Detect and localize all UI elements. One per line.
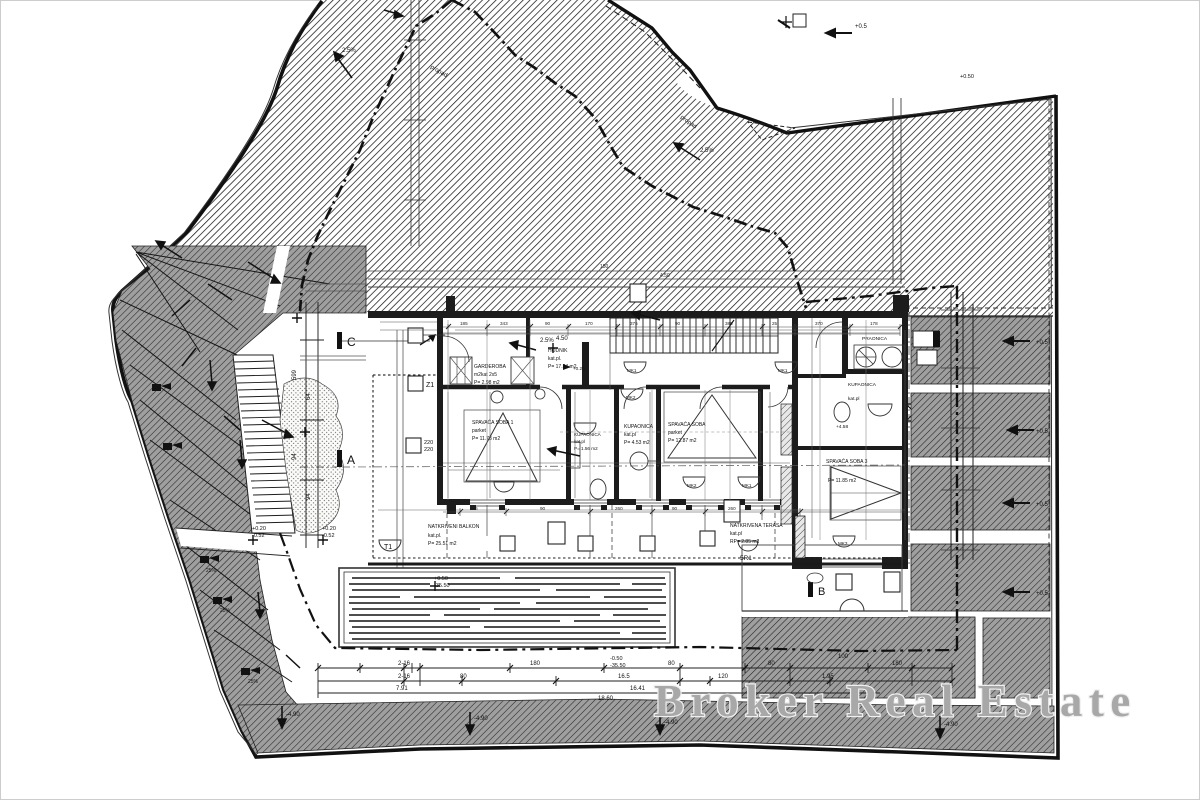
svg-text:kat.pl: kat.pl [624, 432, 636, 438]
svg-text:SPAVAĆA SOBA: SPAVAĆA SOBA [668, 421, 706, 428]
svg-text:370: 370 [815, 321, 823, 326]
svg-text:180: 180 [892, 661, 903, 667]
svg-text:80: 80 [668, 661, 675, 667]
svg-text:100: 100 [838, 654, 849, 660]
svg-text:220: 220 [424, 440, 433, 446]
svg-text:GARDEROBA: GARDEROBA [474, 364, 507, 370]
svg-text:94: 94 [306, 493, 312, 500]
svg-text:KUPAONICA: KUPAONICA [574, 432, 602, 437]
svg-text:+0.5: +0.5 [855, 24, 868, 30]
svg-text:185: 185 [460, 321, 468, 326]
svg-text:260: 260 [615, 506, 623, 511]
svg-text:P= 4.53 m2: P= 4.53 m2 [624, 440, 650, 446]
svg-text:MK1: MK1 [742, 483, 752, 488]
svg-text:SPAVAĆA SOBA 3: SPAVAĆA SOBA 3 [826, 458, 868, 465]
svg-text:-35.50: -35.50 [434, 583, 450, 589]
svg-text:4.50: 4.50 [556, 336, 568, 342]
svg-text:MK2: MK2 [687, 483, 697, 488]
svg-text:kat.pl.: kat.pl. [428, 533, 441, 539]
svg-text:P= 17.54 m2: P= 17.54 m2 [548, 364, 577, 370]
svg-text:kat.pl: kat.pl [730, 531, 742, 537]
svg-text:+4.58: +4.58 [836, 424, 848, 430]
svg-text:RP= 2.85 m2: RP= 2.85 m2 [730, 539, 760, 545]
svg-text:MK1: MK1 [627, 368, 637, 373]
svg-text:KUPAONICA: KUPAONICA [624, 424, 654, 430]
svg-text:2.5%: 2.5% [540, 338, 554, 344]
svg-text:+0.5: +0.5 [1036, 591, 1049, 597]
svg-text:180: 180 [530, 661, 541, 667]
svg-text:+0.50: +0.50 [434, 576, 448, 582]
svg-text:kat.pl.: kat.pl. [548, 356, 561, 362]
svg-text:+0.20: +0.20 [252, 526, 266, 532]
svg-text:90: 90 [545, 321, 551, 326]
svg-text:Z1: Z1 [426, 382, 434, 389]
svg-text:2.5%: 2.5% [342, 48, 356, 54]
svg-text:C: C [347, 335, 356, 349]
svg-text:-4.90: -4.90 [286, 712, 300, 718]
svg-text:MK1: MK1 [778, 368, 788, 373]
svg-text:+0.5: +0.5 [1036, 502, 1049, 508]
svg-text:P= 1.56 m2: P= 1.56 m2 [574, 446, 598, 451]
svg-text:25%: 25% [248, 679, 259, 685]
svg-text:-0.50: -0.50 [610, 656, 623, 662]
svg-text:-0.52: -0.52 [252, 533, 265, 539]
svg-text:+0.20: +0.20 [322, 526, 336, 532]
svg-text:B: B [818, 586, 825, 598]
svg-text:380: 380 [725, 321, 733, 326]
svg-text:2-16: 2-16 [398, 674, 411, 680]
svg-text:16.5: 16.5 [618, 674, 630, 680]
svg-text:+0.5: +0.5 [1036, 340, 1049, 346]
svg-text:18.60: 18.60 [598, 696, 614, 702]
svg-text:kat.pl: kat.pl [848, 396, 859, 402]
svg-text:parket: parket [668, 430, 683, 436]
svg-text:-4.90: -4.90 [474, 716, 488, 722]
svg-text:90: 90 [672, 506, 678, 511]
svg-text:P= 12.87 m2: P= 12.87 m2 [668, 438, 697, 444]
svg-text:parket: parket [472, 428, 487, 434]
svg-text:170: 170 [585, 321, 593, 326]
svg-text:25%: 25% [220, 608, 231, 614]
svg-text:SPAVAĆA SOBA 1: SPAVAĆA SOBA 1 [472, 419, 514, 426]
svg-text:P= 25.51 m2: P= 25.51 m2 [428, 541, 457, 547]
svg-text:2.5%: 2.5% [700, 148, 714, 154]
svg-text:7.91: 7.91 [396, 686, 408, 692]
svg-text:P= 11.85 m2: P= 11.85 m2 [828, 478, 856, 484]
svg-text:-0.52: -0.52 [322, 533, 335, 539]
svg-text:P= 11.73 m2: P= 11.73 m2 [472, 436, 500, 442]
svg-text:NATKRIVENA TERASA: NATKRIVENA TERASA [730, 523, 783, 529]
svg-text:343: 343 [500, 321, 508, 326]
svg-text:25: 25 [772, 321, 778, 326]
svg-text:178: 178 [870, 321, 878, 326]
svg-text:kat.pl: kat.pl [574, 439, 585, 444]
svg-text:150: 150 [600, 264, 609, 270]
svg-text:220: 220 [424, 447, 433, 453]
svg-text:64: 64 [306, 393, 312, 400]
svg-text:2-16: 2-16 [398, 661, 411, 667]
svg-text:NATKRIVENI BALKON: NATKRIVENI BALKON [428, 524, 480, 530]
svg-text:80: 80 [768, 661, 775, 667]
svg-text:375: 375 [630, 321, 638, 326]
svg-text:599: 599 [292, 369, 298, 380]
svg-text:KUPAONICA: KUPAONICA [848, 382, 877, 388]
svg-text:T1: T1 [384, 544, 392, 551]
svg-text:94: 94 [292, 453, 298, 460]
svg-text:+0.50: +0.50 [960, 74, 974, 80]
svg-text:90: 90 [540, 506, 546, 511]
svg-text:4.50: 4.50 [660, 273, 670, 279]
svg-text:m2kat 2x5: m2kat 2x5 [474, 372, 497, 378]
svg-text:90: 90 [675, 321, 681, 326]
svg-text:80: 80 [460, 674, 467, 680]
svg-text:HODNIK: HODNIK [548, 348, 568, 354]
svg-text:A: A [347, 453, 355, 467]
svg-text:25%: 25% [206, 568, 217, 574]
svg-text:Broker Real Estate: Broker Real Estate [654, 676, 1137, 726]
svg-text:260: 260 [728, 506, 736, 511]
svg-text:-35.50: -35.50 [610, 663, 626, 669]
svg-text:16.41: 16.41 [630, 686, 646, 692]
svg-text:+0.5: +0.5 [1036, 429, 1049, 435]
svg-text:5R1: 5R1 [740, 555, 752, 562]
